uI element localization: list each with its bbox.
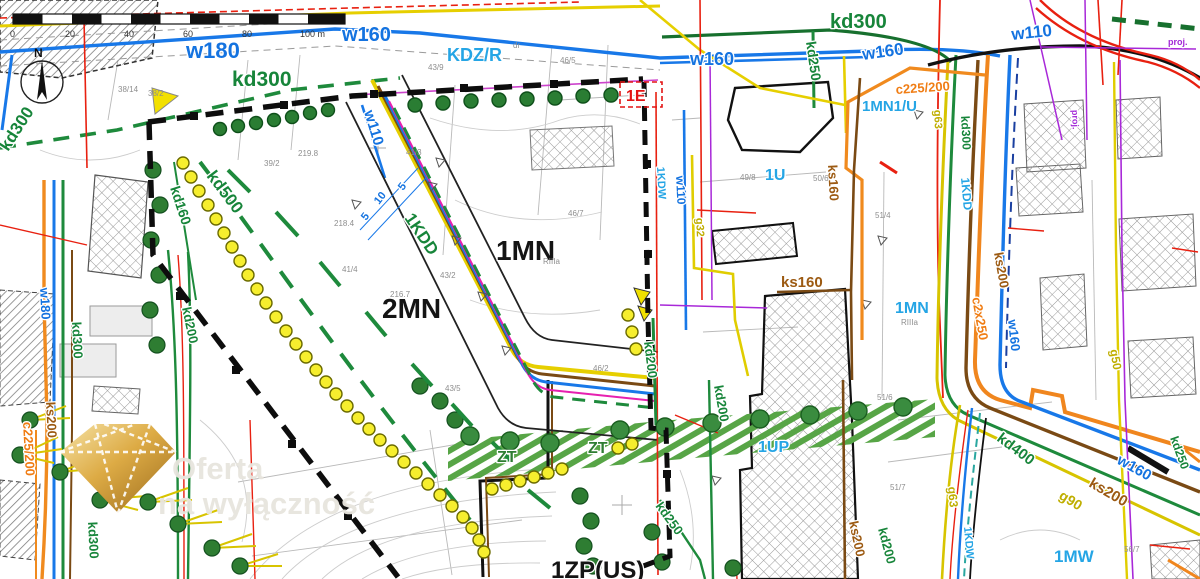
label-g50: g50 — [1107, 348, 1124, 371]
svg-text:218.4: 218.4 — [334, 219, 355, 228]
label-kd200-m: kd200 — [641, 341, 660, 379]
label-c225-tr: c225/200 — [895, 78, 950, 97]
svg-text:38/2: 38/2 — [148, 89, 164, 98]
svg-text:41/3: 41/3 — [406, 148, 422, 157]
svg-text:dr: dr — [513, 41, 520, 50]
label-ks200-br: ks200 — [1086, 475, 1131, 511]
label-kd250-tr: kd250 — [803, 40, 824, 82]
north-compass — [21, 60, 63, 103]
label-kd300-tr: kd300 — [830, 11, 887, 33]
label-dim-10: 10 — [372, 190, 389, 207]
outbuilding — [60, 344, 116, 377]
label-kd200-br: kd200 — [875, 526, 899, 566]
label-w160-rv: w160 — [1005, 318, 1023, 352]
svg-text:49/8: 49/8 — [740, 173, 756, 182]
svg-text:51/7: 51/7 — [890, 483, 906, 492]
svg-text:46/2: 46/2 — [593, 364, 609, 373]
svg-text:51/4: 51/4 — [875, 211, 891, 220]
label-zone-1up: 1UP — [758, 439, 789, 456]
label-g63-br: g63 — [945, 486, 961, 508]
label-kd160: kd160 — [167, 184, 195, 227]
map-canvas: 0 20 40 60 80 100 m N w180 kd300 kd300 w… — [0, 0, 1200, 579]
scale-tick: 0 — [10, 29, 15, 39]
svg-text:39/2: 39/2 — [264, 159, 280, 168]
label-w160: w160 — [341, 24, 391, 46]
gas-g32 — [692, 155, 748, 376]
watermark-line1: Oferta — [172, 451, 264, 486]
label-kd300-ll: kd300 — [85, 521, 102, 559]
label-zone-1e: 1E — [626, 88, 646, 105]
watermark-line2: na wyłączność — [158, 486, 375, 521]
watermark: Oferta na wyłączność — [60, 424, 375, 521]
label-kd300-rv: kd300 — [958, 115, 974, 150]
label-zone-1mn1u: 1MN1/U — [862, 98, 917, 115]
compass-n-label: N — [34, 46, 43, 60]
label-1kdw-mid: 1KDW — [654, 167, 668, 201]
label-zone-1mw: 1MW — [1054, 547, 1095, 566]
label-w180: w180 — [185, 38, 240, 63]
sewer-ks160 — [851, 78, 860, 380]
label-dim-5a: 5 — [396, 181, 409, 193]
label-kd300: kd300 — [232, 68, 292, 91]
label-dim-5b: 5 — [359, 211, 372, 223]
label-g90: g90 — [1056, 487, 1085, 513]
label-w110-tr: w110 — [1009, 21, 1052, 44]
label-g32: g32 — [693, 218, 706, 238]
label-zone-1zpus: 1ZP(US) — [551, 557, 644, 579]
label-w160-tr: w160 — [860, 39, 905, 64]
label-kd300-lv: kd300 — [69, 321, 86, 359]
svg-text:51/6: 51/6 — [877, 393, 893, 402]
label-zt-a: ZT — [497, 449, 517, 466]
svg-text:46/7: 46/7 — [568, 209, 584, 218]
label-w160-mid: w160 — [689, 49, 734, 69]
label-w110-diag: w110 — [360, 107, 387, 147]
scale-tick: 40 — [124, 29, 134, 39]
storm-kd300 — [0, 78, 400, 148]
label-proj-b: proj. — [1070, 110, 1081, 130]
scale-bar — [13, 14, 345, 24]
label-proj-a: proj. — [1168, 37, 1188, 47]
svg-text:56/7: 56/7 — [1124, 545, 1140, 554]
label-w180-lv: w180 — [37, 286, 54, 320]
label-1kdd-right: 1KDD — [958, 177, 975, 211]
svg-text:38/14: 38/14 — [118, 85, 139, 94]
label-c2x250: c2x250 — [969, 296, 991, 341]
scale-tick: 20 — [65, 29, 75, 39]
label-1kdw-br: 1KDW — [961, 526, 976, 560]
svg-text:41/4: 41/4 — [342, 265, 358, 274]
svg-text:219.8: 219.8 — [298, 149, 319, 158]
label-soil-b: RIIIa — [901, 318, 918, 327]
svg-text:43/5: 43/5 — [445, 384, 461, 393]
label-soil-a: RIIIa — [543, 257, 560, 266]
label-c225-l: c225/200 — [20, 421, 38, 476]
label-ks160-h: ks160 — [781, 274, 823, 291]
label-zone-1mn-r: 1MN — [895, 300, 929, 317]
svg-text:43/2: 43/2 — [440, 271, 456, 280]
svg-text:50/6: 50/6 — [813, 174, 829, 183]
water-w110-mid — [684, 110, 686, 330]
zoning-map: 0 20 40 60 80 100 m N w180 kd300 kd300 w… — [0, 0, 1200, 579]
svg-text:216.7: 216.7 — [390, 290, 411, 299]
label-kdzr: KDZ/R — [447, 45, 502, 65]
label-ks200-l: ks200 — [43, 401, 60, 438]
svg-text:43/9: 43/9 — [428, 63, 444, 72]
label-1kdd-diag: 1KDD — [401, 210, 443, 259]
label-zt-b: ZT — [588, 440, 608, 457]
label-zone-1u: 1U — [765, 167, 785, 184]
scale-tick: 80 — [242, 29, 252, 39]
svg-text:46/5: 46/5 — [560, 56, 576, 65]
label-g63-tr: g63 — [931, 110, 944, 130]
label-w110-mv: w110 — [673, 174, 689, 205]
scale-tick: 100 m — [300, 29, 325, 39]
